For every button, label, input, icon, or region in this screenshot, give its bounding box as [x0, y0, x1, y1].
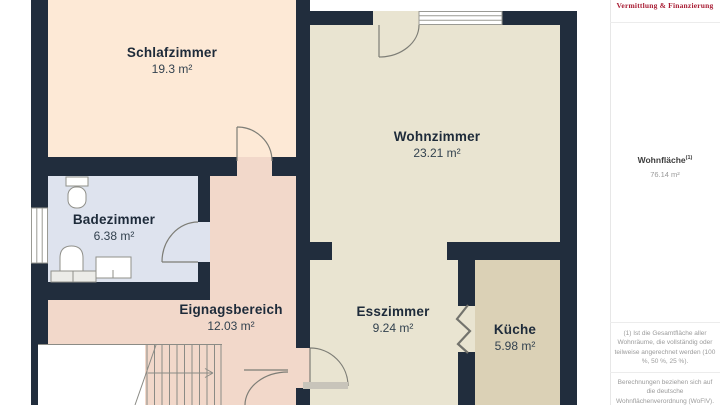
- footnote-marker: (1): [686, 155, 693, 161]
- wall-bad-right-a: [198, 157, 210, 222]
- doorway-patch-esszimmer: [296, 348, 310, 388]
- sidebar-rule-bottom: [610, 372, 720, 373]
- wall-left-outer-low: [31, 345, 38, 405]
- footnote-1: (1) Ist die Gesamtfläche aller Wohnräume…: [613, 329, 717, 367]
- doorway-patch-schlafzimmer: [237, 157, 272, 176]
- living-area-value: 76.14 m²: [610, 170, 720, 179]
- wall-kueche-left-b: [458, 352, 475, 405]
- wall-center-vertical: [296, 0, 310, 348]
- room-fill-kueche: [475, 260, 560, 405]
- room-fill-schlafzimmer: [48, 0, 297, 157]
- sidebar-rule-mid: [610, 322, 720, 323]
- wall-kueche-top: [447, 242, 577, 260]
- wall-bad-right-b: [198, 262, 210, 282]
- wall-top-a: [310, 11, 373, 25]
- doorway-patch-wohnzimmer: [373, 11, 419, 25]
- sidebar-rule-top: [610, 22, 720, 23]
- wall-stub-esszimmer: [310, 242, 332, 260]
- footnote-2: Berechnungen beziehen sich auf die deuts…: [613, 378, 717, 405]
- sidebar-divider: [610, 0, 611, 405]
- window-top: [419, 12, 502, 25]
- wall-right-outer: [560, 11, 577, 405]
- living-area-label: Wohnfläche(1): [610, 155, 720, 165]
- wall-bad-bottom: [31, 282, 210, 300]
- wall-kueche-left-a: [458, 260, 475, 306]
- room-fill-eingangsbereich: [48, 300, 210, 405]
- floorplan-page: Schlafzimmer 19.3 m² Wohnzimmer 23.21 m²…: [0, 0, 720, 405]
- room-fill-badezimmer: [48, 176, 198, 282]
- doorway-patch-badezimmer: [198, 222, 210, 262]
- room-fill-flur: [210, 176, 296, 405]
- broker-logo-text: Vermittlung & Finanzierung: [610, 1, 720, 10]
- wall-center-vertical-low: [296, 388, 310, 405]
- living-area-summary: Wohnfläche(1) 76.14 m²: [610, 155, 720, 179]
